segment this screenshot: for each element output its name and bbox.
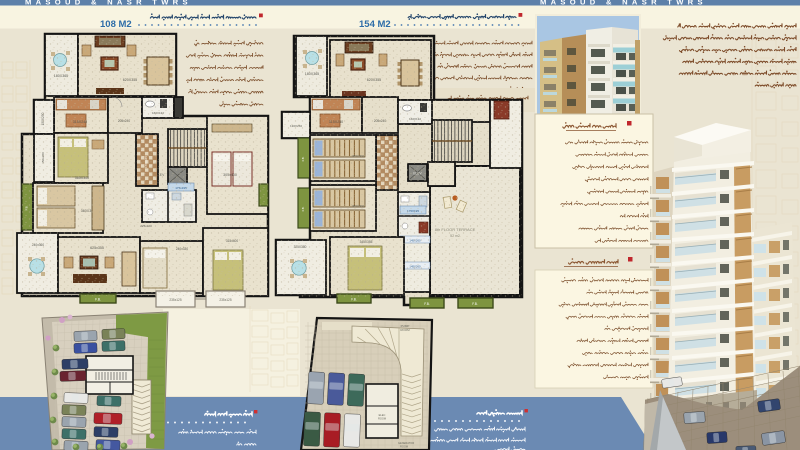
svg-text:F.B.: F.B. [351, 298, 357, 302]
svg-text:235x125: 235x125 [219, 298, 231, 302]
svg-text:F.B.: F.B. [95, 298, 101, 302]
svg-text:ROOM: ROOM [400, 328, 410, 332]
svg-text:ROOM: ROOM [378, 417, 386, 421]
svg-text:154 M2: 154 M2 [359, 19, 391, 30]
svg-text:GENERATOR: GENERATOR [398, 441, 414, 445]
svg-text:ELEC: ELEC [379, 413, 386, 417]
svg-text:F.B.: F.B. [472, 302, 478, 306]
svg-text:F.B.: F.B. [301, 156, 305, 161]
svg-text:F.B.: F.B. [301, 206, 305, 211]
svg-text:F.B.: F.B. [424, 302, 430, 306]
svg-text:108 M2: 108 M2 [100, 19, 132, 30]
svg-text:235x125: 235x125 [169, 298, 181, 302]
svg-text:ROOM: ROOM [400, 445, 408, 449]
